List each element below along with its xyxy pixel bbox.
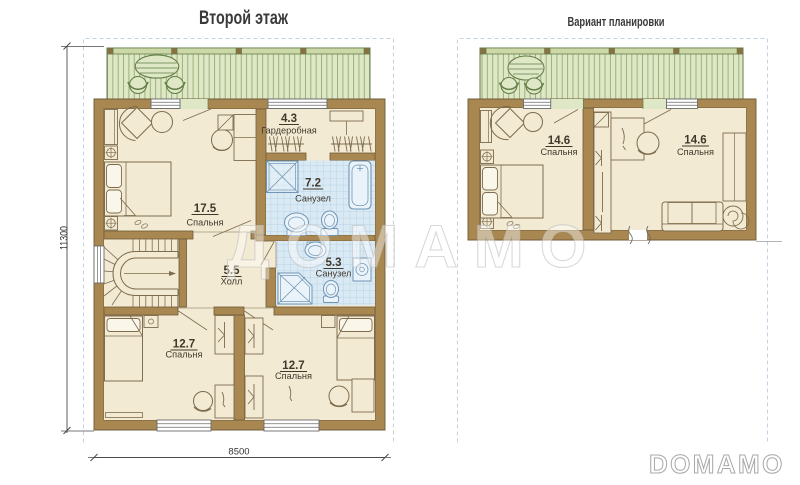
svg-text:DOMAMO: DOMAMO [649, 449, 785, 479]
svg-text:7.2: 7.2 [305, 178, 321, 190]
svg-text:8500: 8500 [228, 447, 249, 458]
svg-text:17.5: 17.5 [194, 203, 217, 215]
svg-text:Санузел: Санузел [295, 194, 331, 204]
svg-text:Спальня: Спальня [187, 218, 224, 228]
svg-text:Второй этаж: Второй этаж [199, 7, 288, 29]
svg-text:Вариант планировки: Вариант планировки [568, 14, 665, 29]
svg-text:14.6: 14.6 [684, 135, 706, 147]
svg-text:Спальня: Спальня [275, 371, 312, 381]
svg-text:Спальня: Спальня [166, 350, 203, 360]
svg-text:Спальня: Спальня [677, 147, 714, 157]
svg-text:4.3: 4.3 [281, 113, 297, 125]
svg-text:Гардеробная: Гардеробная [261, 126, 317, 136]
svg-text:11300: 11300 [59, 226, 71, 250]
svg-text:14.6: 14.6 [548, 135, 570, 147]
svg-text:Спальня: Спальня [541, 147, 578, 157]
svg-text:ДОМАМО: ДОМАМО [227, 213, 602, 280]
